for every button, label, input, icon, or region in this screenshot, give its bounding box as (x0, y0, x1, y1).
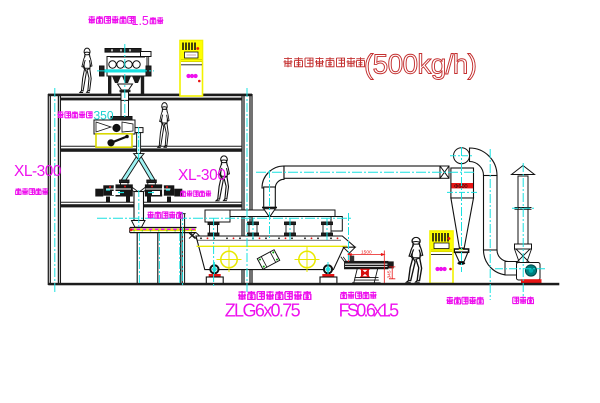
svg-text:FS0.6x1.5: FS0.6x1.5 (339, 301, 400, 321)
svg-text:1.5: 1.5 (132, 14, 149, 28)
svg-text:ZLG6x0.75: ZLG6x0.75 (225, 301, 301, 321)
svg-text:(500kg/h): (500kg/h) (364, 49, 477, 80)
svg-text:345: 345 (387, 270, 393, 278)
svg-text:Φ600: Φ600 (454, 184, 468, 190)
svg-text:350: 350 (94, 109, 114, 123)
svg-text:1500: 1500 (361, 250, 372, 256)
svg-text:XL-300: XL-300 (14, 163, 62, 180)
svg-text:XL-300: XL-300 (178, 167, 226, 184)
